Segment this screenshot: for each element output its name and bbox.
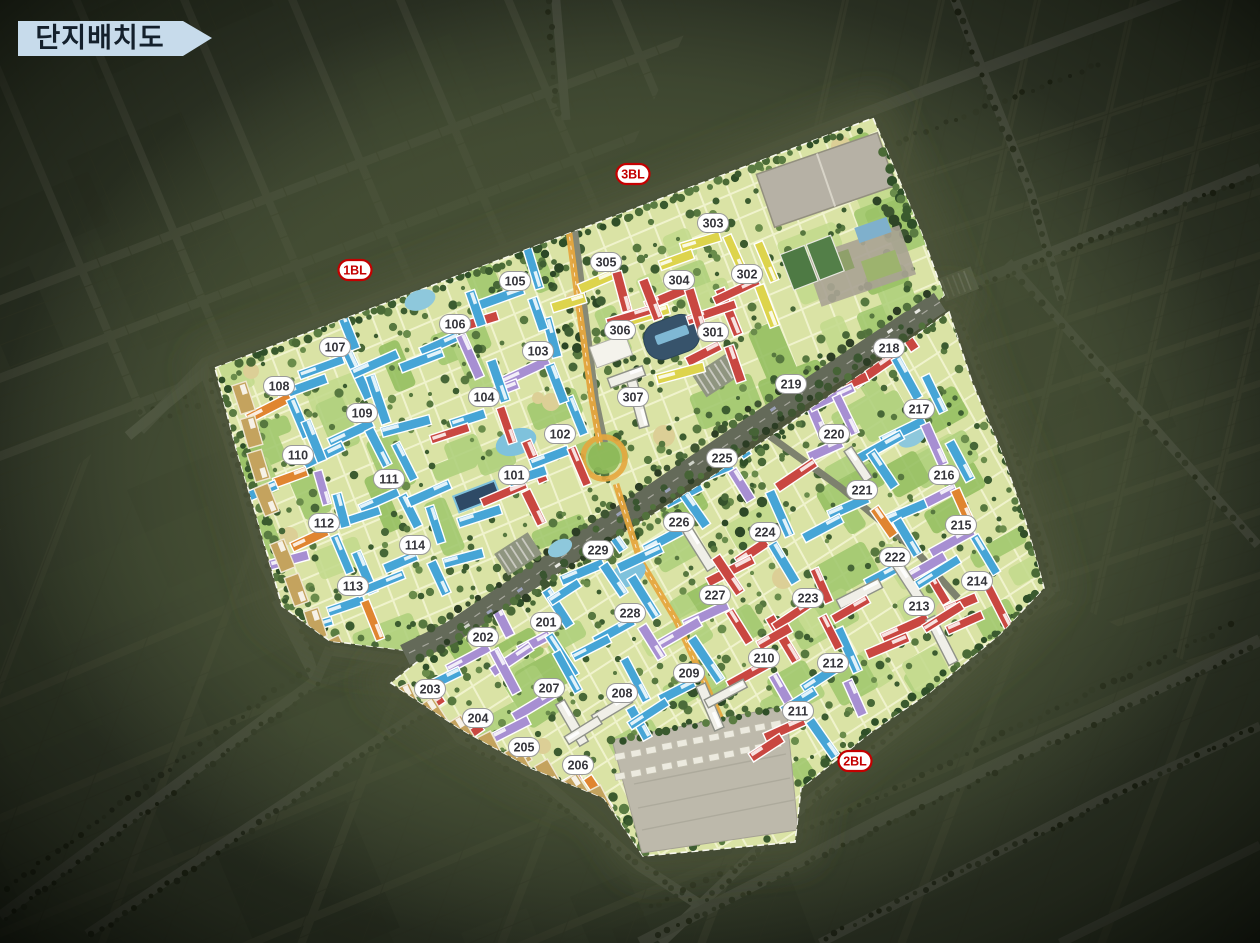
svg-text:205: 205 bbox=[514, 740, 535, 754]
svg-text:306: 306 bbox=[610, 323, 631, 337]
svg-text:114: 114 bbox=[405, 538, 425, 552]
svg-text:109: 109 bbox=[352, 406, 373, 420]
svg-text:102: 102 bbox=[550, 427, 571, 441]
svg-text:213: 213 bbox=[909, 599, 930, 613]
svg-text:210: 210 bbox=[754, 651, 775, 665]
svg-text:214: 214 bbox=[967, 574, 988, 588]
svg-text:201: 201 bbox=[536, 615, 557, 629]
svg-text:108: 108 bbox=[269, 379, 290, 393]
svg-text:302: 302 bbox=[737, 267, 758, 281]
svg-text:215: 215 bbox=[951, 518, 972, 532]
svg-text:113: 113 bbox=[343, 579, 363, 593]
svg-text:216: 216 bbox=[934, 468, 955, 482]
svg-text:3BL: 3BL bbox=[621, 167, 645, 181]
svg-text:303: 303 bbox=[703, 216, 724, 230]
svg-text:304: 304 bbox=[669, 273, 690, 287]
svg-text:223: 223 bbox=[798, 591, 819, 605]
svg-text:228: 228 bbox=[620, 606, 641, 620]
svg-text:단지배치도: 단지배치도 bbox=[35, 23, 164, 53]
svg-text:307: 307 bbox=[623, 390, 644, 404]
svg-text:222: 222 bbox=[885, 550, 906, 564]
svg-text:103: 103 bbox=[528, 344, 549, 358]
svg-text:106: 106 bbox=[445, 317, 466, 331]
svg-text:111: 111 bbox=[379, 472, 399, 486]
svg-text:209: 209 bbox=[679, 666, 700, 680]
svg-text:229: 229 bbox=[588, 543, 609, 557]
svg-text:224: 224 bbox=[755, 525, 776, 539]
svg-text:217: 217 bbox=[909, 402, 930, 416]
svg-text:1BL: 1BL bbox=[343, 263, 367, 277]
svg-text:218: 218 bbox=[879, 341, 900, 355]
svg-text:212: 212 bbox=[823, 656, 844, 670]
svg-text:101: 101 bbox=[504, 468, 525, 482]
svg-text:107: 107 bbox=[325, 340, 346, 354]
svg-text:227: 227 bbox=[705, 588, 726, 602]
svg-text:202: 202 bbox=[473, 630, 494, 644]
svg-text:226: 226 bbox=[669, 515, 690, 529]
svg-text:206: 206 bbox=[568, 758, 589, 772]
svg-text:221: 221 bbox=[852, 483, 873, 497]
svg-text:305: 305 bbox=[596, 255, 617, 269]
svg-text:2BL: 2BL bbox=[843, 754, 867, 768]
svg-text:220: 220 bbox=[824, 427, 845, 441]
svg-text:104: 104 bbox=[474, 390, 495, 404]
svg-text:211: 211 bbox=[788, 704, 808, 718]
svg-text:301: 301 bbox=[703, 325, 724, 339]
svg-text:112: 112 bbox=[314, 516, 334, 530]
svg-text:219: 219 bbox=[781, 377, 802, 391]
svg-text:105: 105 bbox=[505, 274, 526, 288]
svg-text:203: 203 bbox=[420, 682, 441, 696]
svg-text:207: 207 bbox=[539, 681, 560, 695]
svg-text:110: 110 bbox=[288, 448, 308, 462]
svg-text:208: 208 bbox=[612, 686, 633, 700]
svg-text:204: 204 bbox=[468, 711, 489, 725]
svg-text:225: 225 bbox=[712, 451, 733, 465]
